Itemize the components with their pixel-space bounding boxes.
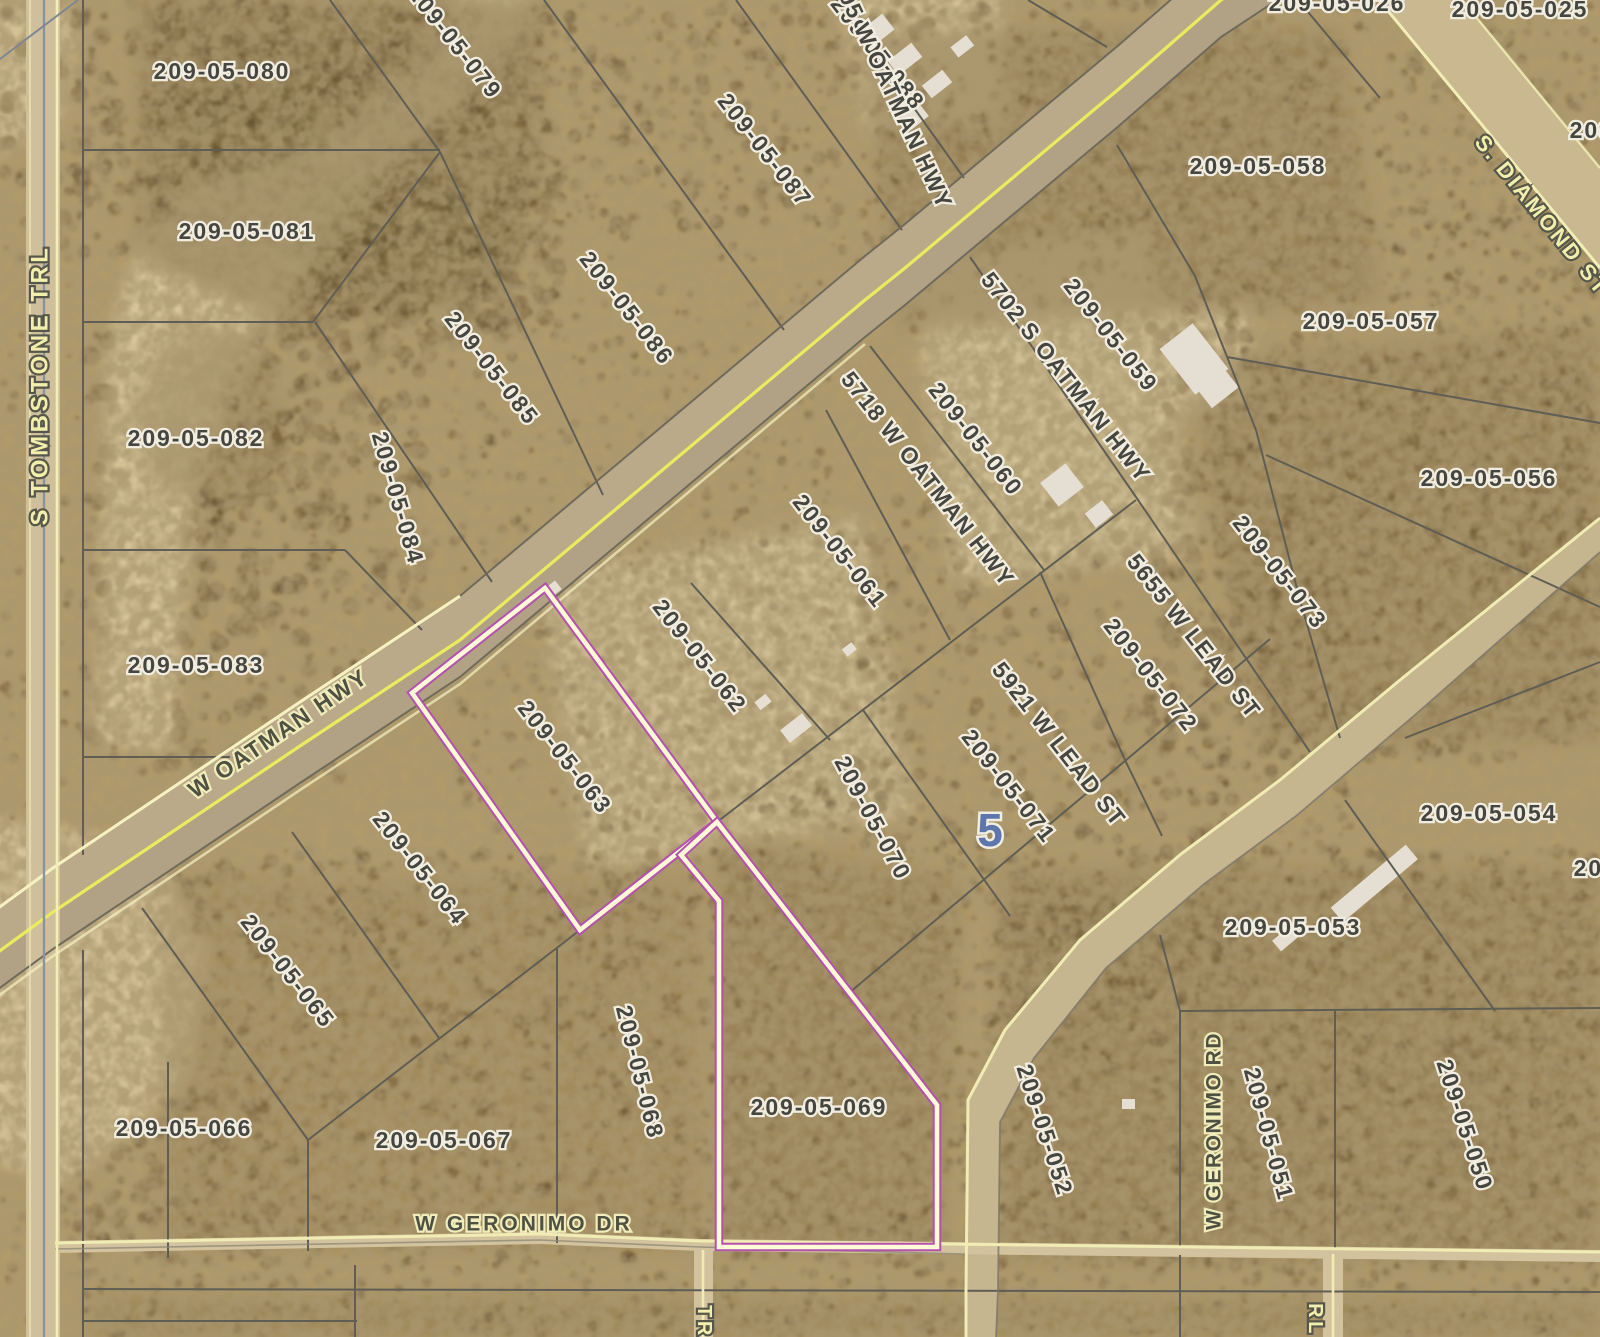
svg-text:209-05-069: 209-05-069 bbox=[751, 1094, 888, 1120]
svg-text:S TOMBSTONE TRL: S TOMBSTONE TRL bbox=[27, 245, 54, 526]
svg-text:W GERONIMO RD: W GERONIMO RD bbox=[1203, 1032, 1226, 1230]
svg-text:209-05-056: 209-05-056 bbox=[1421, 465, 1558, 491]
svg-text:W GERONIMO DR: W GERONIMO DR bbox=[415, 1213, 633, 1236]
svg-text:209-05-083: 209-05-083 bbox=[128, 652, 265, 678]
svg-text:209-05-053: 209-05-053 bbox=[1225, 914, 1362, 940]
svg-text:5: 5 bbox=[977, 804, 1003, 856]
svg-text:209-05-080: 209-05-080 bbox=[154, 58, 291, 84]
svg-text:209-05-066: 209-05-066 bbox=[116, 1115, 253, 1141]
svg-text:209-05-058: 209-05-058 bbox=[1190, 153, 1327, 179]
svg-text:209-05-055: 209-05-055 bbox=[1570, 117, 1600, 143]
svg-text:209-05-057: 209-05-057 bbox=[1303, 308, 1440, 334]
svg-text:209-05-082: 209-05-082 bbox=[128, 425, 265, 451]
svg-text:209-05-049: 209-05-049 bbox=[1574, 855, 1600, 881]
svg-text:209-05-054: 209-05-054 bbox=[1421, 800, 1558, 826]
svg-text:TR: TR bbox=[693, 1305, 715, 1337]
svg-text:RL: RL bbox=[1304, 1303, 1326, 1337]
svg-text:209-05-067: 209-05-067 bbox=[376, 1127, 513, 1153]
svg-text:209-05-081: 209-05-081 bbox=[179, 218, 316, 244]
svg-text:209-05-026: 209-05-026 bbox=[1269, 0, 1406, 16]
svg-text:209-05-025: 209-05-025 bbox=[1452, 0, 1589, 22]
